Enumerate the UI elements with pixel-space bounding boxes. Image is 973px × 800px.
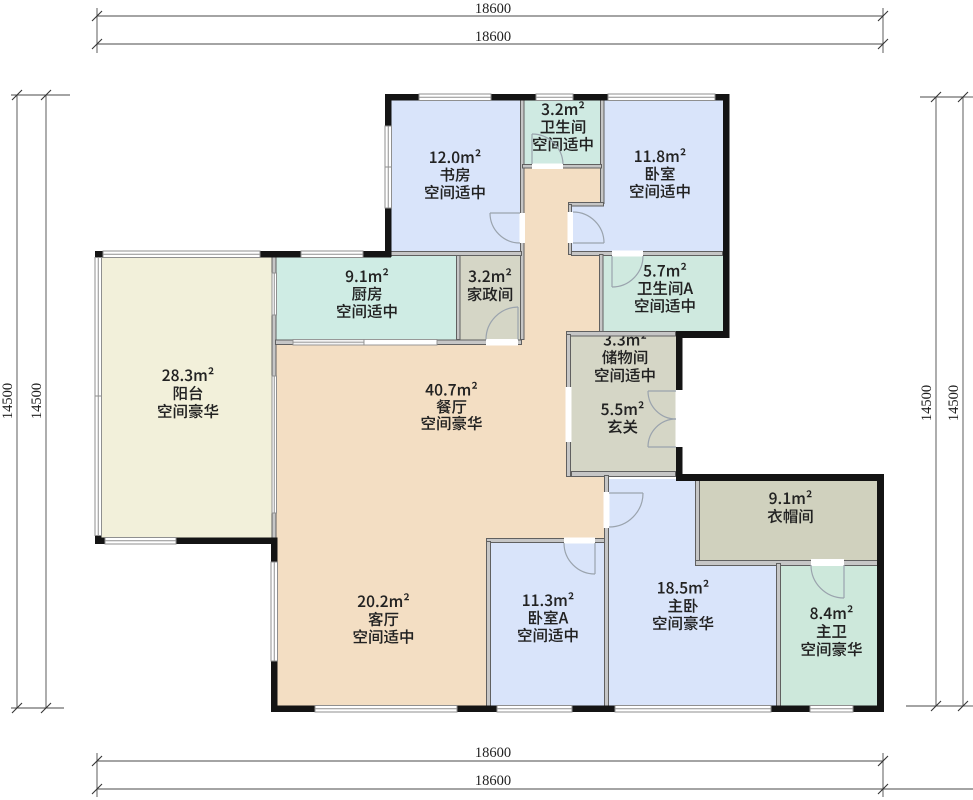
svg-text:14500: 14500	[946, 385, 962, 421]
svg-text:18600: 18600	[475, 1, 511, 17]
svg-text:14500: 14500	[0, 383, 16, 419]
svg-text:18600: 18600	[475, 745, 511, 761]
svg-text:14500: 14500	[919, 385, 935, 421]
svg-text:18600: 18600	[475, 773, 511, 789]
svg-text:14500: 14500	[29, 383, 45, 419]
svg-text:18600: 18600	[475, 29, 511, 45]
